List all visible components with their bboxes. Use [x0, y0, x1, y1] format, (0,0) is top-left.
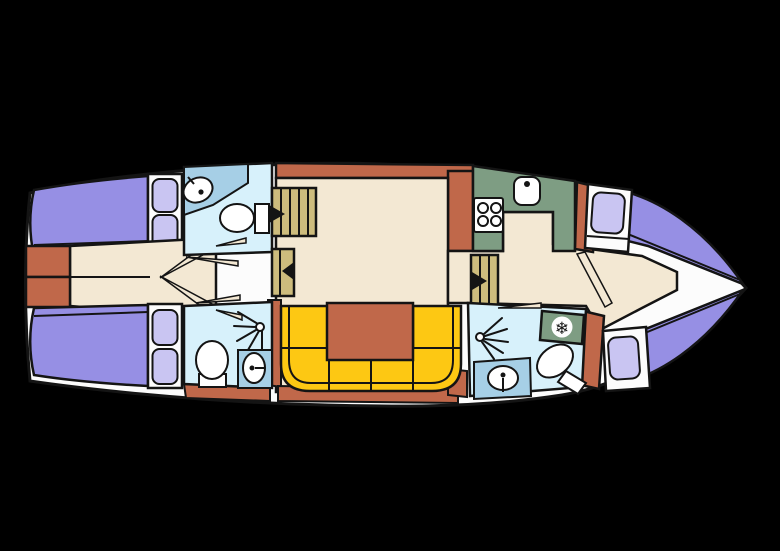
toilet [196, 341, 228, 379]
shower-head [256, 323, 264, 331]
pillow [608, 336, 641, 380]
faucet-dot [250, 366, 255, 371]
bed-aft-starboard [30, 305, 148, 386]
shower-head [476, 333, 484, 341]
boat-floor-plan-svg: ❄ [0, 0, 780, 551]
saloon-bulkhead-trim [276, 163, 473, 178]
faucet-dot [501, 373, 506, 378]
toilet-tank [255, 204, 269, 233]
stove-burner [491, 203, 501, 213]
stove-burner [491, 216, 501, 226]
boat-floor-plan-canvas: ❄ [0, 0, 780, 551]
pillow [153, 349, 178, 384]
saloon-cabinet [448, 171, 473, 251]
snowflake-icon: ❄ [555, 319, 569, 339]
faucet-dot [198, 189, 203, 194]
saloon-table [327, 303, 413, 360]
faucet-dot [524, 181, 530, 187]
stove-burner [478, 203, 488, 213]
pillow [591, 192, 626, 234]
aft-locker [26, 277, 70, 307]
toilet [220, 204, 254, 232]
aft-locker [26, 246, 70, 277]
pillow [153, 179, 178, 212]
pillow [153, 310, 178, 345]
stove-burner [478, 216, 488, 226]
